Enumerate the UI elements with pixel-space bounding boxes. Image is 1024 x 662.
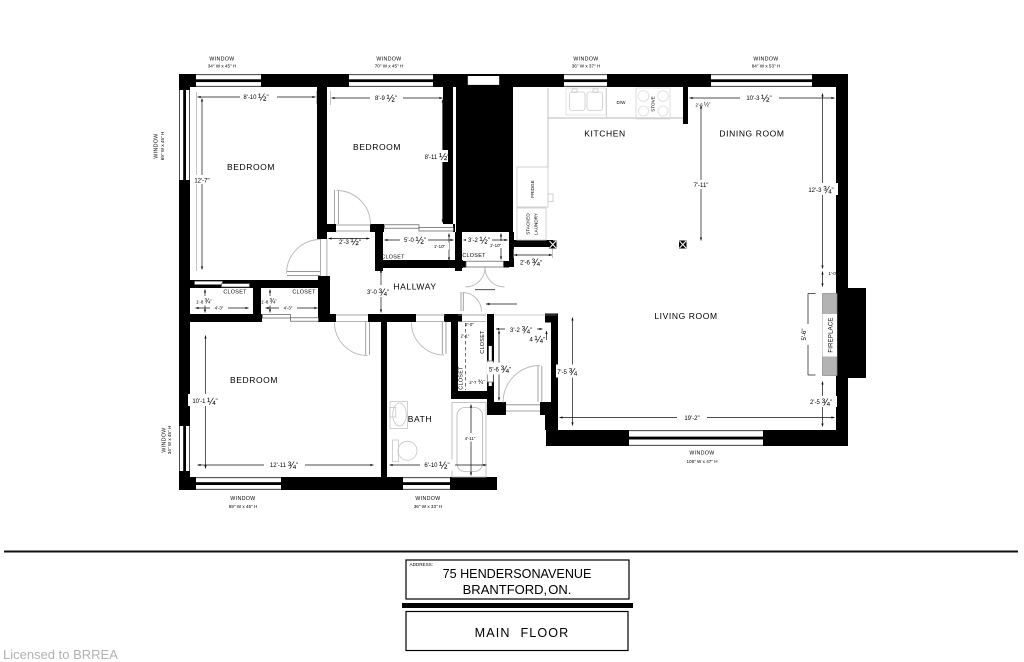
svg-text:DINING ROOM: DINING ROOM (719, 129, 784, 139)
svg-text:BEDROOM: BEDROOM (353, 142, 401, 152)
svg-text:WINDOW: WINDOW (689, 451, 714, 457)
svg-text:BRANTFORD, ON.: BRANTFORD, ON. (463, 582, 572, 597)
svg-text:Licensed to BRREA: Licensed to BRREA (3, 647, 118, 662)
svg-text:FIREPLACE: FIREPLACE (829, 317, 835, 352)
svg-text:1'-8 ¾": 1'-8 ¾" (196, 298, 212, 305)
svg-text:84" W x 53" H: 84" W x 53" H (752, 64, 781, 69)
svg-text:ADDRESS:: ADDRESS: (410, 562, 434, 567)
svg-text:WINDOW: WINDOW (209, 57, 234, 63)
svg-text:108" W x 47" H: 108" W x 47" H (686, 459, 717, 464)
svg-text:CLOSET: CLOSET (223, 290, 247, 296)
svg-text:69" W x 45" H: 69" W x 45" H (229, 504, 258, 509)
svg-text:4'-11": 4'-11" (465, 436, 476, 441)
svg-text:75 HENDERSONAVENUE: 75 HENDERSONAVENUE (443, 567, 592, 581)
svg-text:2'-6 ½": 2'-6 ½" (696, 101, 711, 108)
svg-text:70" W x 45" H: 70" W x 45" H (375, 64, 404, 69)
svg-text:LIVING ROOM: LIVING ROOM (654, 311, 717, 321)
svg-text:BEDROOM: BEDROOM (227, 162, 275, 172)
svg-text:2'-0": 2'-0" (465, 322, 474, 327)
svg-text:4'-3": 4'-3" (284, 306, 293, 311)
svg-text:BATH: BATH (408, 414, 432, 424)
svg-text:12'-7": 12'-7" (194, 179, 209, 185)
svg-text:CLOSET: CLOSET (459, 366, 465, 390)
svg-text:WINDOW: WINDOW (230, 496, 255, 502)
svg-text:2'-1": 2'-1" (461, 334, 470, 339)
svg-text:36" W x 37" H: 36" W x 37" H (572, 64, 601, 69)
svg-text:CLOSET: CLOSET (462, 253, 486, 259)
svg-text:4'-3": 4'-3" (215, 306, 224, 311)
svg-text:69" W x 45" H: 69" W x 45" H (160, 132, 165, 161)
svg-text:WINDOW: WINDOW (415, 496, 440, 502)
svg-text:36" W x 33" H: 36" W x 33" H (414, 504, 443, 509)
svg-text:D/W: D/W (617, 100, 627, 105)
svg-text:MAIN FLOOR: MAIN FLOOR (475, 626, 570, 640)
svg-text:FRIDGE: FRIDGE (530, 180, 535, 197)
svg-text:CLOSET: CLOSET (292, 290, 316, 296)
svg-text:WINDOW: WINDOW (376, 57, 401, 63)
svg-text:1'-0": 1'-0" (829, 271, 838, 276)
svg-text:1'-10": 1'-10" (434, 244, 446, 249)
svg-text:7'-11": 7'-11" (694, 183, 709, 189)
svg-text:HALLWAY: HALLWAY (393, 282, 436, 292)
svg-text:WINDOW: WINDOW (154, 133, 160, 158)
svg-text:34" W x 45" H: 34" W x 45" H (167, 426, 172, 455)
svg-text:STACKED: STACKED (526, 213, 531, 235)
svg-text:1'-10": 1'-10" (490, 243, 502, 248)
svg-text:WINDOW: WINDOW (573, 57, 598, 63)
svg-text:STOVE: STOVE (651, 96, 656, 112)
svg-text:34" W x 45" H: 34" W x 45" H (208, 64, 237, 69)
svg-text:CLOSET: CLOSET (480, 330, 486, 354)
svg-text:BEDROOM: BEDROOM (230, 375, 278, 385)
svg-text:WINDOW: WINDOW (753, 57, 778, 63)
svg-text:LAUNDRY: LAUNDRY (534, 213, 539, 235)
svg-text:1'-8 ¾": 1'-8 ¾" (261, 298, 277, 305)
svg-text:KITCHEN: KITCHEN (584, 129, 626, 139)
svg-text:2'-7 ¾": 2'-7 ¾" (469, 379, 485, 386)
svg-text:19'-2": 19'-2" (684, 416, 699, 422)
svg-text:CLOSET: CLOSET (381, 255, 405, 261)
svg-text:5'-6": 5'-6" (802, 329, 808, 341)
